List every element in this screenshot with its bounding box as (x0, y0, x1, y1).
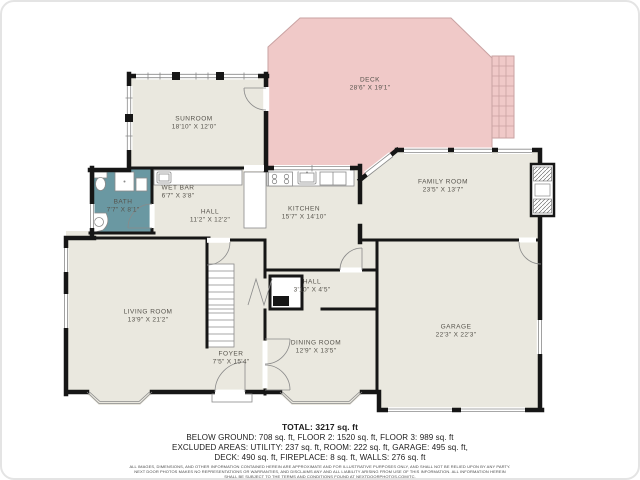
disclaimer: ALL IMAGES, DIMENSIONS, AND OTHER INFORM… (2, 465, 638, 479)
floorplan-svg (2, 2, 640, 480)
stove-icon (269, 172, 293, 186)
summary-total: TOTAL: 3217 sq. ft (2, 422, 638, 432)
stairs-icon (207, 264, 234, 347)
disclaimer-line-3: SHALL BE SUBJECT TO THE TERMS AND CONDIT… (2, 475, 638, 480)
summary-line-2: EXCLUDED AREAS: UTILITY: 237 sq. ft, ROO… (2, 443, 638, 452)
front-stoop (212, 394, 252, 402)
area-summary: TOTAL: 3217 sq. ft BELOW GROUND: 708 sq.… (2, 422, 638, 479)
floorplan-page: DECK28'6" X 19'1" SUNROOM18'10" X 12'0" … (0, 0, 640, 480)
summary-line-3: DECK: 490 sq. ft, FIREPLACE: 8 sq. ft, W… (2, 453, 638, 462)
bath-cabinet (136, 178, 147, 191)
summary-line-1: BELOW GROUND: 708 sq. ft, FLOOR 2: 1520 … (2, 433, 638, 442)
vanity-sink-icon (95, 218, 104, 227)
peninsula-counter (244, 172, 266, 228)
fireplace-icon (531, 164, 554, 216)
